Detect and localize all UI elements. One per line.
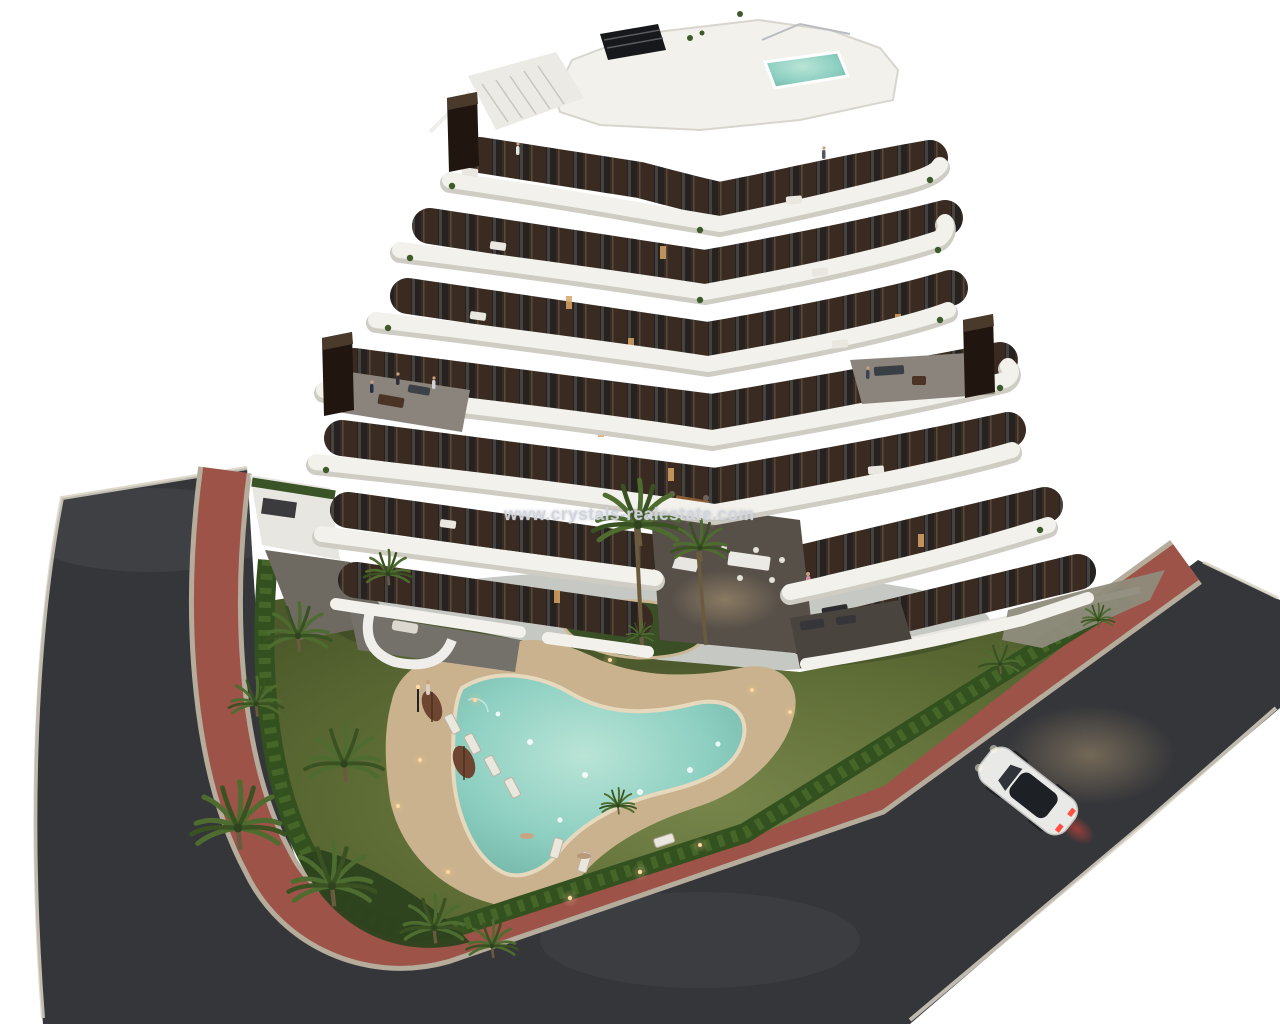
watermark: www.crystals-realestate.com: [504, 504, 784, 525]
rooftop-terrace: [430, 11, 898, 155]
rooftop-stairs: [468, 52, 584, 130]
render-image: www.crystals-realestate.com: [0, 0, 1280, 1024]
apartment-building: [316, 11, 1088, 672]
